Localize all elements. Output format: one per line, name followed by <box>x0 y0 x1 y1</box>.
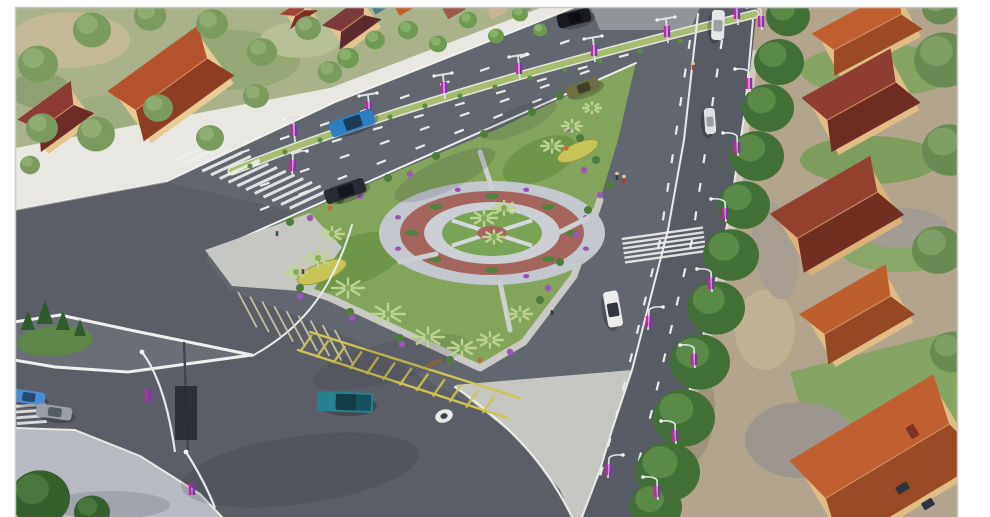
island-flowers-orange <box>328 206 333 211</box>
lamp-banner <box>441 82 444 93</box>
frame-margin-left <box>0 0 15 517</box>
palm-crown <box>487 337 493 343</box>
scene-svg <box>0 0 990 517</box>
palm-crown <box>345 285 351 291</box>
lamp-head <box>184 450 189 455</box>
tree-highlight <box>78 498 98 516</box>
lamp-head <box>450 71 453 74</box>
lamp-banner <box>295 125 298 136</box>
lamp-banner <box>595 45 598 56</box>
motorbike-rider <box>691 62 695 70</box>
tree-highlight <box>928 128 959 156</box>
car-cabin <box>47 407 62 418</box>
island-shrubs-green <box>296 284 304 292</box>
island-shrubs-green <box>576 134 584 142</box>
island-flowers-purple <box>545 285 551 291</box>
island-flowers-purple <box>507 349 513 355</box>
lamp-head <box>375 91 378 94</box>
lamp-banner <box>726 208 729 219</box>
median-shrubs <box>562 67 567 72</box>
island-palm-trees <box>471 210 497 226</box>
island-palm-trees <box>448 340 476 357</box>
lamp-head <box>733 67 737 71</box>
lamp-head <box>661 305 665 309</box>
island-shrubs-green <box>556 92 564 100</box>
lamp-banner <box>695 354 698 365</box>
lamp-head <box>357 94 360 97</box>
tree-highlight <box>199 127 214 141</box>
pedestrian <box>622 175 626 183</box>
pedestrian <box>550 307 554 315</box>
person-head <box>301 266 305 270</box>
lamp-banner <box>734 8 737 19</box>
island-shrubs-green <box>384 174 392 182</box>
island-flowers-purple <box>349 315 355 321</box>
lamp-banner <box>520 63 523 74</box>
lamp-head <box>709 197 713 201</box>
median-shrubs <box>247 163 252 168</box>
tree-highlight <box>659 393 693 424</box>
person-head <box>275 228 279 232</box>
lamp-banner <box>149 390 152 401</box>
lamp-banner <box>712 278 715 289</box>
plaza-planters <box>406 230 419 236</box>
island-palm-trees <box>412 327 444 346</box>
island-shrubs-green <box>606 181 614 189</box>
tree-highlight <box>199 11 217 27</box>
lamp-head <box>673 15 676 18</box>
palm-crown <box>459 345 465 351</box>
lamp-banner <box>664 26 667 37</box>
lamp-head <box>600 34 603 37</box>
island-palm-trees <box>483 230 505 245</box>
lamp-head <box>432 74 435 77</box>
median-shrubs <box>422 103 427 108</box>
tree-highlight <box>709 233 740 261</box>
island-flowers-orange <box>564 146 569 151</box>
palm-crown <box>315 255 321 261</box>
tree-highlight <box>81 119 102 138</box>
palm-crown <box>385 311 391 317</box>
lamp-banner <box>650 316 653 327</box>
tree-highlight <box>642 446 677 478</box>
dark-banner <box>175 386 197 440</box>
car-cabin <box>335 394 357 411</box>
island-palm-trees <box>332 278 364 297</box>
tree-highlight <box>917 229 946 255</box>
tree-highlight <box>920 36 953 66</box>
car-cabin <box>713 20 722 32</box>
lane-dashes-right-road <box>676 126 677 135</box>
lamp-banner <box>758 16 761 27</box>
lamp-banner <box>658 486 661 497</box>
plaza-planters <box>542 256 555 262</box>
island-shrubs-green <box>528 108 536 116</box>
palm-crown <box>501 205 507 211</box>
lamp-head <box>507 55 510 58</box>
median-shrubs <box>282 149 287 154</box>
island-palm-trees <box>303 249 333 267</box>
tree-highlight <box>693 285 725 314</box>
lamp-head <box>678 343 682 347</box>
lane-dashes-right-road <box>672 154 673 163</box>
median-shrubs <box>597 58 602 63</box>
lamp-head <box>641 475 645 479</box>
tree-highlight <box>22 48 44 68</box>
tree-highlight <box>146 96 163 111</box>
lamp-banner <box>610 464 613 475</box>
island-flowers-orange <box>478 358 483 363</box>
car-cabin <box>22 392 36 403</box>
island-shrubs-green <box>396 334 404 342</box>
tree-highlight <box>16 474 49 504</box>
median-shrubs <box>317 137 322 142</box>
tree-highlight <box>320 62 333 74</box>
lamp-banner <box>445 82 448 93</box>
median-shrubs <box>637 48 642 53</box>
lane-dashes-right-road <box>684 69 685 78</box>
island-shrubs-green <box>446 356 454 364</box>
island-flowers-purple <box>407 171 413 177</box>
pickup-bed <box>356 394 372 411</box>
lamp-head <box>582 37 585 40</box>
tree-highlight <box>514 8 523 16</box>
island-shrubs-green <box>286 218 294 226</box>
tree-highlight <box>461 13 471 22</box>
plaza-planters <box>542 204 555 210</box>
lamp-head <box>305 149 309 153</box>
tree-highlight <box>534 24 542 31</box>
lane-dashes-right-road <box>704 154 705 163</box>
person-head <box>622 175 626 179</box>
island-flowers-purple <box>573 232 579 238</box>
plaza-planters <box>429 204 442 210</box>
lane-dashes-right-road <box>721 40 722 49</box>
plaza-flower-beds-purple <box>523 274 529 278</box>
palm-crown <box>569 123 575 129</box>
tree-highlight <box>339 49 351 60</box>
lamp-banner <box>189 484 192 495</box>
island-palm-trees <box>477 332 503 348</box>
lamp-head <box>140 350 145 355</box>
island-shrubs-green <box>432 152 440 160</box>
lamp-head <box>300 114 303 117</box>
island-flowers-purple <box>297 293 303 299</box>
plaza-flower-beds-purple <box>395 215 401 219</box>
lamp-banner <box>722 208 725 219</box>
lane-dashes-right-road <box>663 211 664 220</box>
palm-crown <box>481 215 487 221</box>
lane-dashes-right-road <box>712 97 713 106</box>
tree-highlight <box>490 30 499 38</box>
tree-highlight <box>747 87 776 113</box>
median-shrubs <box>677 38 682 43</box>
lane-dashes-right-road <box>695 211 696 220</box>
tree-highlight <box>77 15 98 34</box>
lane-dashes-right-road <box>667 183 668 192</box>
lamp-banner <box>708 278 711 289</box>
plaza-planters <box>486 267 499 273</box>
palm-crown <box>491 234 497 240</box>
car-cabin <box>706 116 714 126</box>
tree-highlight <box>250 40 267 55</box>
plaza-flower-beds-purple <box>395 247 401 251</box>
plaza-flower-beds-purple <box>583 247 589 251</box>
lamp-banner <box>294 160 297 171</box>
island-palm-trees <box>492 201 516 216</box>
lamp-head <box>659 419 663 423</box>
tree-highlight <box>298 18 312 31</box>
pedestrian <box>615 172 619 180</box>
person-head <box>550 307 554 311</box>
palm-crown <box>329 231 335 237</box>
lamp-banner <box>193 484 196 495</box>
plaza-planters <box>486 193 499 199</box>
lamp-banner <box>676 430 679 441</box>
pedestrian <box>301 266 305 274</box>
frame-margin-right <box>958 0 990 517</box>
lamp-banner <box>750 78 753 89</box>
lane-dashes-right-road <box>689 40 690 49</box>
lamp-head <box>525 52 528 55</box>
lamp-banner <box>762 16 765 27</box>
palm-crown <box>517 311 523 317</box>
island-flowers-purple <box>597 192 603 198</box>
lamp-banner <box>646 316 649 327</box>
lamp-banner <box>668 26 671 37</box>
lamp-banner <box>738 142 741 153</box>
lane-dashes-right-road <box>699 183 700 192</box>
lamp-banner <box>291 125 294 136</box>
lamp-banner <box>591 45 594 56</box>
palm-crown <box>425 334 431 340</box>
median-shrubs <box>457 93 462 98</box>
tree-highlight <box>723 184 752 210</box>
tree-highlight <box>22 157 33 167</box>
plaza-flower-beds-purple <box>455 188 461 192</box>
tree-highlight <box>934 334 958 356</box>
island-flowers-purple <box>581 167 587 173</box>
distant-pavement <box>590 7 700 30</box>
lamp-banner <box>746 78 749 89</box>
lamp-banner <box>516 63 519 74</box>
person-head <box>615 172 619 176</box>
palm-crown <box>589 105 595 111</box>
car-cabin <box>607 302 620 317</box>
island-shrubs-green <box>536 296 544 304</box>
lamp-banner <box>606 464 609 475</box>
tree-highlight <box>759 42 787 67</box>
lamp-head <box>621 453 625 457</box>
palm-crown <box>293 269 299 275</box>
island-palm-trees <box>508 307 532 322</box>
tree-highlight <box>367 32 378 42</box>
lamp-head <box>721 131 725 135</box>
median-shrubs <box>527 75 532 80</box>
lamp-head <box>282 117 285 120</box>
tree-highlight <box>400 22 411 32</box>
island-palm-trees <box>320 227 344 242</box>
person-head <box>691 62 695 66</box>
island-shrubs-green <box>556 258 564 266</box>
lane-dashes-right-road <box>716 69 717 78</box>
lamp-banner <box>654 486 657 497</box>
palm-crown <box>549 143 555 149</box>
island-flowers-purple <box>399 341 405 347</box>
lamp-banner <box>738 8 741 19</box>
island-shrubs-green <box>584 206 592 214</box>
island-shrubs-green <box>592 156 600 164</box>
aerial-render-screenshot <box>0 0 990 517</box>
island-palm-trees <box>371 304 405 324</box>
island-shrubs-green <box>480 130 488 138</box>
lamp-banner <box>290 160 293 171</box>
lamp-banner <box>691 354 694 365</box>
tree-highlight <box>431 37 441 46</box>
lamp-banner <box>734 142 737 153</box>
lamp-head <box>695 267 699 271</box>
median-shrubs <box>492 84 497 89</box>
island-palm-trees <box>541 139 563 154</box>
island-shrubs-green <box>346 308 354 316</box>
lamp-head <box>655 18 658 21</box>
lane-dashes-right-road <box>680 97 681 106</box>
pedestrian <box>275 228 279 236</box>
median-shrubs <box>387 114 392 119</box>
tree-highlight <box>29 115 47 131</box>
tree-highlight <box>246 86 260 99</box>
plaza-flower-beds-purple <box>523 188 529 192</box>
lamp-banner <box>672 430 675 441</box>
frame-margin-top <box>0 0 990 7</box>
island-flowers-purple <box>307 215 313 221</box>
lamp-banner <box>145 390 148 401</box>
